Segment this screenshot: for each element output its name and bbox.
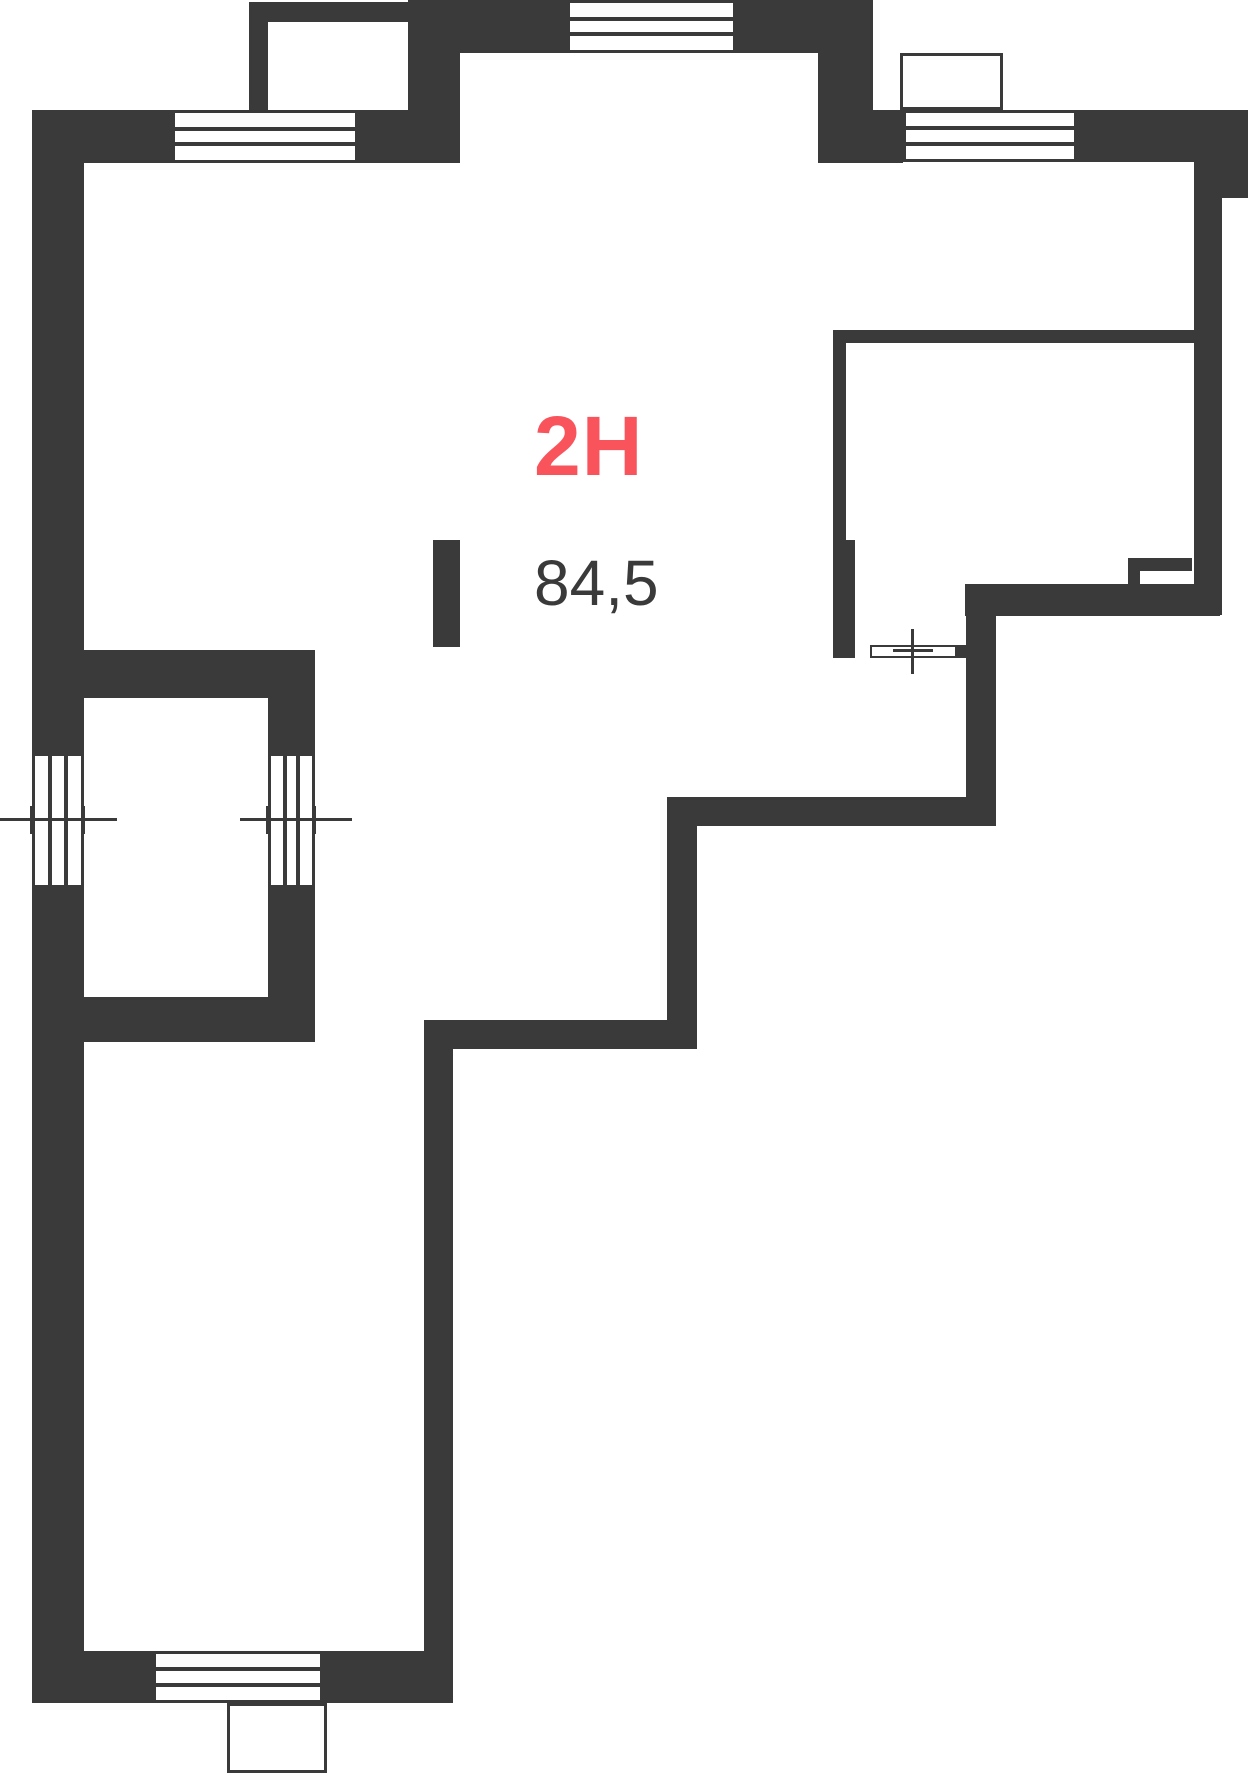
window-bottom-divider-1 xyxy=(156,1667,320,1671)
top-center-wall-right xyxy=(736,0,873,53)
top-step-vertical-wall xyxy=(818,53,873,163)
shaft-stub-leg xyxy=(1128,558,1140,584)
area-label: 84,5 xyxy=(534,551,659,615)
ne-corner-step xyxy=(1194,162,1248,198)
left-room-bottom-wall xyxy=(32,997,315,1042)
top-wall-east-right xyxy=(1077,110,1248,162)
window-bottom xyxy=(153,1651,323,1703)
top-wall-east-left xyxy=(873,110,903,163)
mid-horizontal-wall-upper xyxy=(667,797,996,826)
axis-left-room-tick-a xyxy=(266,806,269,834)
window-top-west xyxy=(172,110,358,163)
axis-left-room-tick-b xyxy=(313,806,316,834)
balcony-bottom xyxy=(227,1703,327,1773)
axis-window-west-line xyxy=(0,818,117,821)
top-wall-corner-block xyxy=(408,0,460,163)
window-top-east xyxy=(903,110,1077,162)
top-wall-mid-segment xyxy=(358,110,408,163)
mid-horizontal-wall-lower xyxy=(424,1020,697,1049)
floor-plan: 2H 84,5 xyxy=(0,0,1248,1774)
axis-door-tick xyxy=(893,649,933,652)
room-west-wall-upper xyxy=(833,330,846,540)
left-room-east-wall-upper xyxy=(268,650,315,753)
window-top-east-divider-1 xyxy=(906,126,1074,130)
axis-left-room-line xyxy=(240,818,352,821)
top-center-wall-left xyxy=(460,0,567,53)
bottom-wall-east xyxy=(323,1651,453,1703)
axis-window-west-tick-b xyxy=(82,806,85,834)
east-wall xyxy=(1194,198,1222,615)
balcony-top-east xyxy=(900,53,1003,110)
bottom-wall-west xyxy=(32,1651,153,1703)
window-top-west-divider-1 xyxy=(175,127,355,131)
se-thick-wall xyxy=(965,584,1220,616)
balcony-tl-top-wall xyxy=(249,2,408,22)
window-top-east-divider-2 xyxy=(906,142,1074,146)
window-bottom-divider-2 xyxy=(156,1683,320,1687)
mid-east-vertical-wall xyxy=(966,585,996,826)
window-top-center xyxy=(567,0,736,53)
axis-window-west-tick-a xyxy=(30,806,33,834)
unit-label: 2H xyxy=(534,404,643,488)
window-top-west-divider-2 xyxy=(175,142,355,146)
window-top-center-divider-1 xyxy=(570,17,733,21)
window-top-center-divider-2 xyxy=(570,32,733,36)
corridor-east-wall xyxy=(424,1020,453,1651)
mid-vertical-wall xyxy=(667,797,697,1049)
door-jamb xyxy=(957,645,967,658)
room-west-wall-lower xyxy=(833,540,855,658)
room-top-wall xyxy=(833,330,1194,343)
interior-wall-stub xyxy=(433,540,460,647)
